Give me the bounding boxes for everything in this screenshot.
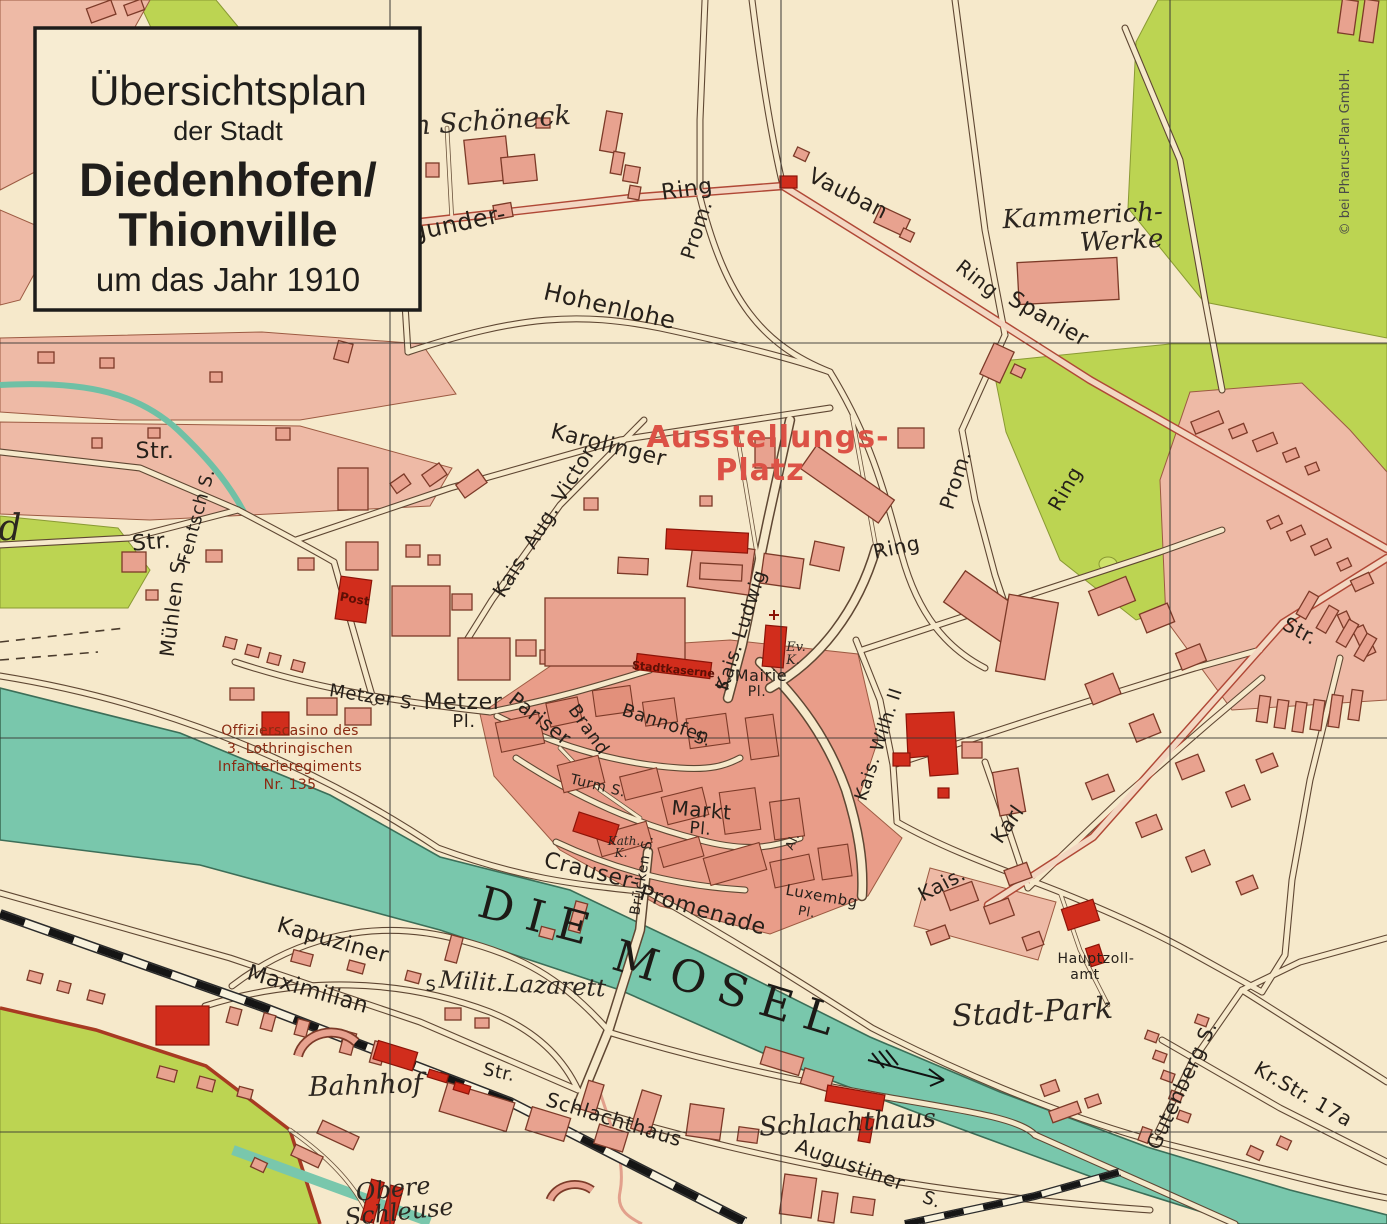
- title-line-5: um das Jahr 1910: [96, 261, 360, 298]
- title-line-4: Thionville: [118, 203, 337, 256]
- map-label: Pl.: [689, 818, 713, 840]
- map-label: Mairie: [735, 666, 788, 685]
- map-label: Platz: [715, 453, 804, 488]
- title-line-3: Diedenhofen/: [79, 153, 377, 206]
- map-label: Nr. 135: [264, 777, 317, 793]
- map-label: amt: [1070, 967, 1100, 983]
- map-label: Infanterieregiments: [218, 759, 362, 775]
- title-line-1: Übersichtsplan: [89, 67, 367, 114]
- map-label: Hauptzoll-: [1057, 951, 1134, 967]
- title-line-2: der Stadt: [173, 116, 283, 146]
- title-box: Übersichtsplan der Stadt Diedenhofen/ Th…: [35, 28, 420, 310]
- map-label: Str.: [131, 528, 172, 556]
- copyright-text: © bei Pharus-Plan GmbH.: [1338, 69, 1353, 236]
- map-label: Pl.: [797, 904, 817, 922]
- map-label: Bahnhof: [307, 1068, 427, 1103]
- map-label: Offizierscasino des: [221, 723, 359, 739]
- map-label: d: [0, 508, 22, 549]
- map-label: S: [426, 976, 437, 995]
- map-label: Pl.: [452, 711, 475, 732]
- map-label: K.: [785, 653, 800, 668]
- map-canvas: Im Schöneckgunder-RingProm.VaubanRingSpa…: [0, 0, 1387, 1224]
- map-label: 3. Lothringischen: [227, 741, 353, 757]
- military-hospital: [156, 1006, 209, 1045]
- protestant-church: [762, 625, 786, 668]
- map-label: Str.: [135, 439, 174, 464]
- map-label: Ausstellungs-: [646, 420, 889, 455]
- map-label: Pl.: [748, 684, 767, 700]
- map-label: Werke: [1079, 224, 1164, 258]
- map-label: K.: [614, 846, 628, 860]
